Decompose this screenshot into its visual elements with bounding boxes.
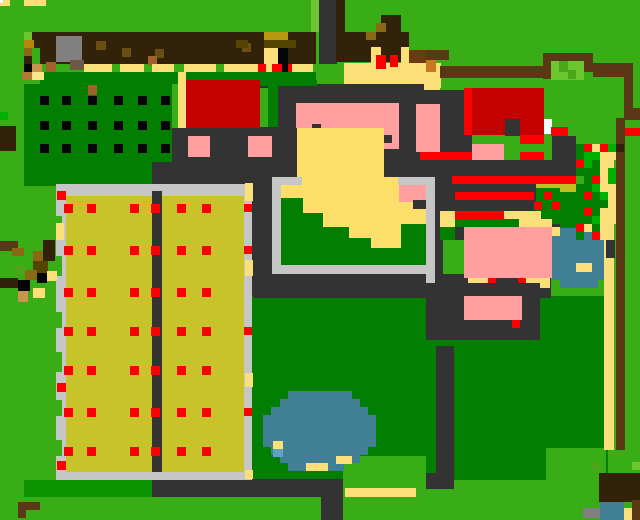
field-dots-red — [151, 408, 160, 417]
crop-dots-black — [114, 121, 123, 130]
map-rect — [504, 211, 541, 219]
crop-dots-black — [88, 96, 97, 105]
map-rect — [24, 48, 32, 56]
map-rect — [424, 84, 440, 90]
garden-pixel — [584, 208, 592, 216]
map-rect — [56, 36, 82, 62]
map-rect — [0, 126, 16, 151]
map-rect — [512, 320, 520, 328]
map-rect — [413, 200, 426, 209]
map-rect — [245, 260, 253, 276]
map-rect — [264, 40, 296, 48]
crop-dots-black — [40, 144, 49, 153]
map-rect — [244, 327, 252, 335]
garden-pixel — [600, 152, 608, 160]
garden-pixel — [576, 224, 584, 232]
map-rect — [292, 64, 313, 72]
map-rect — [172, 128, 256, 164]
map-rect — [440, 227, 455, 240]
garden-pixel — [576, 152, 584, 160]
map-rect — [371, 248, 401, 265]
map-rect — [245, 183, 253, 201]
crop-dots-black — [62, 96, 71, 105]
map-rect — [25, 270, 37, 280]
map-rect — [120, 64, 144, 72]
map-rect — [0, 497, 640, 520]
map-rect — [178, 72, 186, 128]
field-dots-red — [64, 366, 73, 375]
map-rect — [280, 399, 360, 407]
map-rect — [401, 47, 409, 63]
map-rect — [426, 473, 436, 489]
crop-dots-black — [161, 96, 170, 105]
map-rect — [440, 66, 545, 78]
map-rect — [18, 502, 40, 510]
map-rect — [33, 251, 43, 261]
map-rect — [24, 32, 32, 40]
field-dots-red — [64, 246, 73, 255]
map-rect — [272, 265, 435, 274]
map-rect — [288, 64, 292, 72]
garden-pixel — [584, 216, 592, 224]
map-rect — [272, 177, 302, 185]
map-rect — [416, 104, 440, 152]
map-rect — [576, 263, 592, 272]
map-rect — [345, 488, 416, 497]
map-rect — [24, 0, 46, 6]
garden-pixel — [608, 152, 616, 160]
map-rect — [184, 64, 216, 72]
map-rect — [152, 479, 343, 497]
map-rect — [56, 223, 64, 240]
garden-pixel — [600, 232, 608, 240]
map-rect — [366, 32, 376, 40]
map-rect — [398, 177, 435, 185]
field-dots-red — [202, 408, 211, 417]
map-rect — [32, 64, 42, 72]
map-rect — [376, 23, 386, 32]
garden-pixel — [584, 168, 592, 176]
crop-dots-black — [138, 96, 147, 105]
map-rect — [520, 152, 544, 160]
field-dots-red — [64, 408, 73, 417]
map-rect — [593, 63, 624, 77]
field-dots-red — [130, 366, 139, 375]
map-rect — [281, 198, 303, 265]
map-rect — [624, 508, 632, 520]
field-dots-red — [87, 447, 96, 456]
field-dots-red — [130, 204, 139, 213]
field-dots-red — [87, 366, 96, 375]
garden-pixel — [584, 152, 592, 160]
field-dots-red — [130, 447, 139, 456]
map-rect — [0, 112, 8, 120]
garden-pixel — [600, 208, 608, 216]
garden-pixel — [592, 200, 600, 208]
map-rect — [271, 407, 368, 415]
crop-dots-black — [138, 144, 147, 153]
field-dots-red — [202, 246, 211, 255]
map-rect — [632, 500, 640, 520]
map-rect — [349, 238, 371, 265]
field-dots-red — [151, 288, 160, 297]
crop-dots-black — [161, 121, 170, 130]
garden-pixel — [592, 184, 600, 192]
map-rect — [56, 352, 62, 372]
map-rect — [311, 0, 319, 32]
map-rect — [272, 177, 281, 274]
map-rect — [560, 184, 576, 192]
map-rect — [188, 136, 210, 157]
map-rect — [559, 61, 568, 72]
map-rect — [592, 462, 600, 470]
map-rect — [43, 240, 55, 261]
garden-pixel — [608, 208, 616, 216]
map-rect — [84, 64, 112, 72]
field-dots-red — [202, 327, 211, 336]
field-dots-red — [177, 366, 186, 375]
map-rect — [606, 240, 615, 258]
garden-pixel — [608, 216, 616, 224]
garden-pixel — [576, 216, 584, 224]
map-rect — [534, 202, 542, 210]
map-rect — [273, 449, 283, 457]
map-rect — [464, 227, 552, 278]
field-dots-red — [87, 204, 96, 213]
map-rect — [426, 50, 449, 60]
field-dots-red — [64, 327, 73, 336]
map-rect — [24, 64, 32, 72]
garden-pixel — [584, 200, 592, 208]
map-rect — [186, 80, 260, 128]
map-rect — [436, 346, 454, 489]
map-rect — [236, 40, 248, 48]
field-dots-red — [64, 447, 73, 456]
garden-pixel — [600, 216, 608, 224]
field-dots-red — [202, 204, 211, 213]
map-rect — [273, 441, 283, 449]
map-rect — [57, 383, 66, 392]
map-rect — [519, 219, 552, 227]
garden-pixel — [584, 224, 592, 232]
map-rect — [0, 278, 18, 288]
crop-dots-black — [40, 96, 49, 105]
field-dots-red — [130, 288, 139, 297]
map-rect — [426, 60, 436, 72]
map-rect — [32, 32, 40, 40]
field-dots-red — [151, 246, 160, 255]
map-rect — [420, 152, 472, 160]
garden-pixel — [608, 184, 616, 192]
garden-pixel — [608, 192, 616, 200]
map-rect — [306, 463, 328, 471]
crop-dots-black — [88, 144, 97, 153]
garden-pixel — [608, 176, 616, 184]
field-dots-red — [177, 327, 186, 336]
garden-pixel — [600, 176, 608, 184]
map-rect — [260, 88, 268, 127]
field-dots-red — [87, 288, 96, 297]
garden-pixel — [584, 144, 592, 152]
map-rect — [426, 72, 436, 84]
map-rect — [272, 64, 282, 72]
map-rect — [552, 236, 606, 280]
map-rect — [568, 70, 576, 79]
map-rect — [256, 80, 317, 86]
map-rect — [336, 0, 345, 32]
field-dots-red — [130, 327, 139, 336]
field-dots-red — [151, 447, 160, 456]
garden-pixel — [600, 192, 608, 200]
garden-pixel — [592, 192, 600, 200]
map-rect — [96, 41, 106, 50]
map-rect — [336, 456, 352, 464]
map-rect — [401, 224, 426, 265]
field-dots-red — [177, 288, 186, 297]
garden-pixel — [608, 168, 616, 176]
garden-pixel — [592, 232, 600, 240]
map-rect — [122, 48, 131, 57]
field-dots-red — [202, 366, 211, 375]
crop-dots-black — [40, 121, 49, 130]
garden-pixel — [576, 184, 584, 192]
garden-pixel — [592, 224, 600, 232]
map-rect — [600, 502, 624, 520]
map-rect — [244, 204, 252, 212]
garden-pixel — [616, 144, 624, 152]
garden-pixel — [584, 184, 592, 192]
map-rect — [244, 408, 252, 416]
map-rect — [505, 119, 520, 136]
map-rect — [18, 291, 28, 302]
field-dots-red — [177, 204, 186, 213]
field-dots-red — [64, 288, 73, 297]
map-rect — [56, 400, 62, 416]
field-dots-red — [130, 408, 139, 417]
garden-pixel — [592, 168, 600, 176]
map-rect — [624, 108, 640, 120]
map-rect — [57, 191, 66, 200]
garden-pixel — [600, 168, 608, 176]
world-map[interactable] — [0, 0, 640, 520]
garden-pixel — [600, 144, 608, 152]
map-rect — [47, 271, 57, 281]
garden-pixel — [576, 168, 584, 176]
crop-dots-black — [62, 121, 71, 130]
map-rect — [33, 288, 45, 298]
map-rect — [303, 213, 323, 265]
garden-pixel — [576, 160, 584, 168]
garden-pixel — [592, 152, 600, 160]
field-dots-red — [87, 408, 96, 417]
map-rect — [244, 246, 252, 254]
map-rect — [616, 118, 625, 450]
garden-pixel — [592, 160, 600, 168]
map-rect — [278, 48, 288, 64]
map-rect — [632, 462, 640, 470]
garden-pixel — [592, 216, 600, 224]
garden-pixel — [576, 232, 584, 240]
map-rect — [583, 508, 600, 518]
garden-pixel — [584, 160, 592, 168]
map-rect — [426, 177, 435, 283]
crop-dots-black — [62, 144, 71, 153]
map-rect — [46, 62, 56, 72]
map-rect — [268, 86, 278, 127]
garden-pixel — [592, 208, 600, 216]
map-rect — [552, 201, 560, 209]
map-rect — [248, 136, 272, 157]
map-rect — [584, 53, 593, 72]
garden-pixel — [592, 144, 600, 152]
map-rect — [440, 211, 455, 227]
map-rect — [624, 63, 633, 112]
map-rect — [323, 227, 349, 265]
garden-pixel — [600, 224, 608, 232]
field-dots-red — [202, 447, 211, 456]
crop-dots-black — [161, 144, 170, 153]
map-rect — [12, 248, 24, 256]
map-rect — [258, 64, 266, 72]
map-rect — [464, 296, 522, 320]
field-dots-red — [87, 327, 96, 336]
map-rect — [24, 40, 34, 48]
map-rect — [18, 280, 30, 291]
garden-pixel — [600, 200, 608, 208]
map-rect — [32, 72, 44, 80]
map-rect — [551, 127, 568, 136]
map-rect — [56, 440, 62, 456]
garden-pixel — [600, 160, 608, 168]
map-rect — [245, 373, 253, 387]
map-rect — [552, 136, 576, 176]
map-rect — [34, 40, 40, 48]
crop-dots-black — [114, 96, 123, 105]
map-rect — [520, 135, 544, 144]
field-dots-red — [177, 408, 186, 417]
field-dots-red — [130, 246, 139, 255]
field-dots-red — [151, 366, 160, 375]
map-rect — [0, 0, 3, 3]
field-dots-red — [151, 327, 160, 336]
map-rect — [56, 312, 62, 328]
map-rect — [319, 0, 337, 64]
crop-dots-black — [114, 144, 123, 153]
garden-pixel — [584, 192, 592, 200]
garden-pixel — [600, 184, 608, 192]
map-rect — [455, 192, 534, 200]
garden-pixel — [592, 176, 600, 184]
map-rect — [455, 219, 519, 227]
map-rect — [288, 391, 352, 399]
map-rect — [321, 479, 343, 520]
map-rect — [24, 56, 32, 64]
map-rect — [297, 128, 384, 177]
map-rect — [452, 176, 576, 184]
field-dots-red — [151, 204, 160, 213]
map-rect — [37, 273, 47, 283]
map-rect — [560, 280, 598, 288]
garden-pixel — [576, 144, 584, 152]
field-dots-red — [87, 246, 96, 255]
map-rect — [455, 211, 504, 219]
map-rect — [57, 461, 66, 470]
map-rect — [302, 177, 398, 185]
map-rect — [24, 480, 152, 497]
map-rect — [152, 64, 174, 72]
map-rect — [70, 60, 84, 70]
crop-dots-black — [88, 121, 97, 130]
map-rect — [271, 447, 368, 455]
field-dots-red — [177, 447, 186, 456]
map-rect — [472, 144, 504, 160]
crop-dots-black — [138, 121, 147, 130]
map-rect — [390, 55, 398, 67]
field-dots-red — [64, 204, 73, 213]
map-rect — [376, 55, 386, 69]
garden-pixel — [608, 144, 616, 152]
field-dots-red — [202, 288, 211, 297]
map-rect — [88, 85, 97, 95]
garden-pixel — [584, 176, 592, 184]
map-rect — [264, 48, 278, 64]
field-dots-red — [177, 246, 186, 255]
map-rect — [18, 510, 26, 518]
map-rect — [66, 196, 152, 472]
map-rect — [544, 192, 552, 200]
map-rect — [264, 32, 288, 40]
map-rect — [245, 470, 253, 479]
map-rect — [599, 473, 640, 502]
garden-pixel — [608, 200, 616, 208]
map-rect — [15, 265, 25, 275]
map-rect — [224, 64, 258, 72]
map-rect — [464, 88, 472, 135]
